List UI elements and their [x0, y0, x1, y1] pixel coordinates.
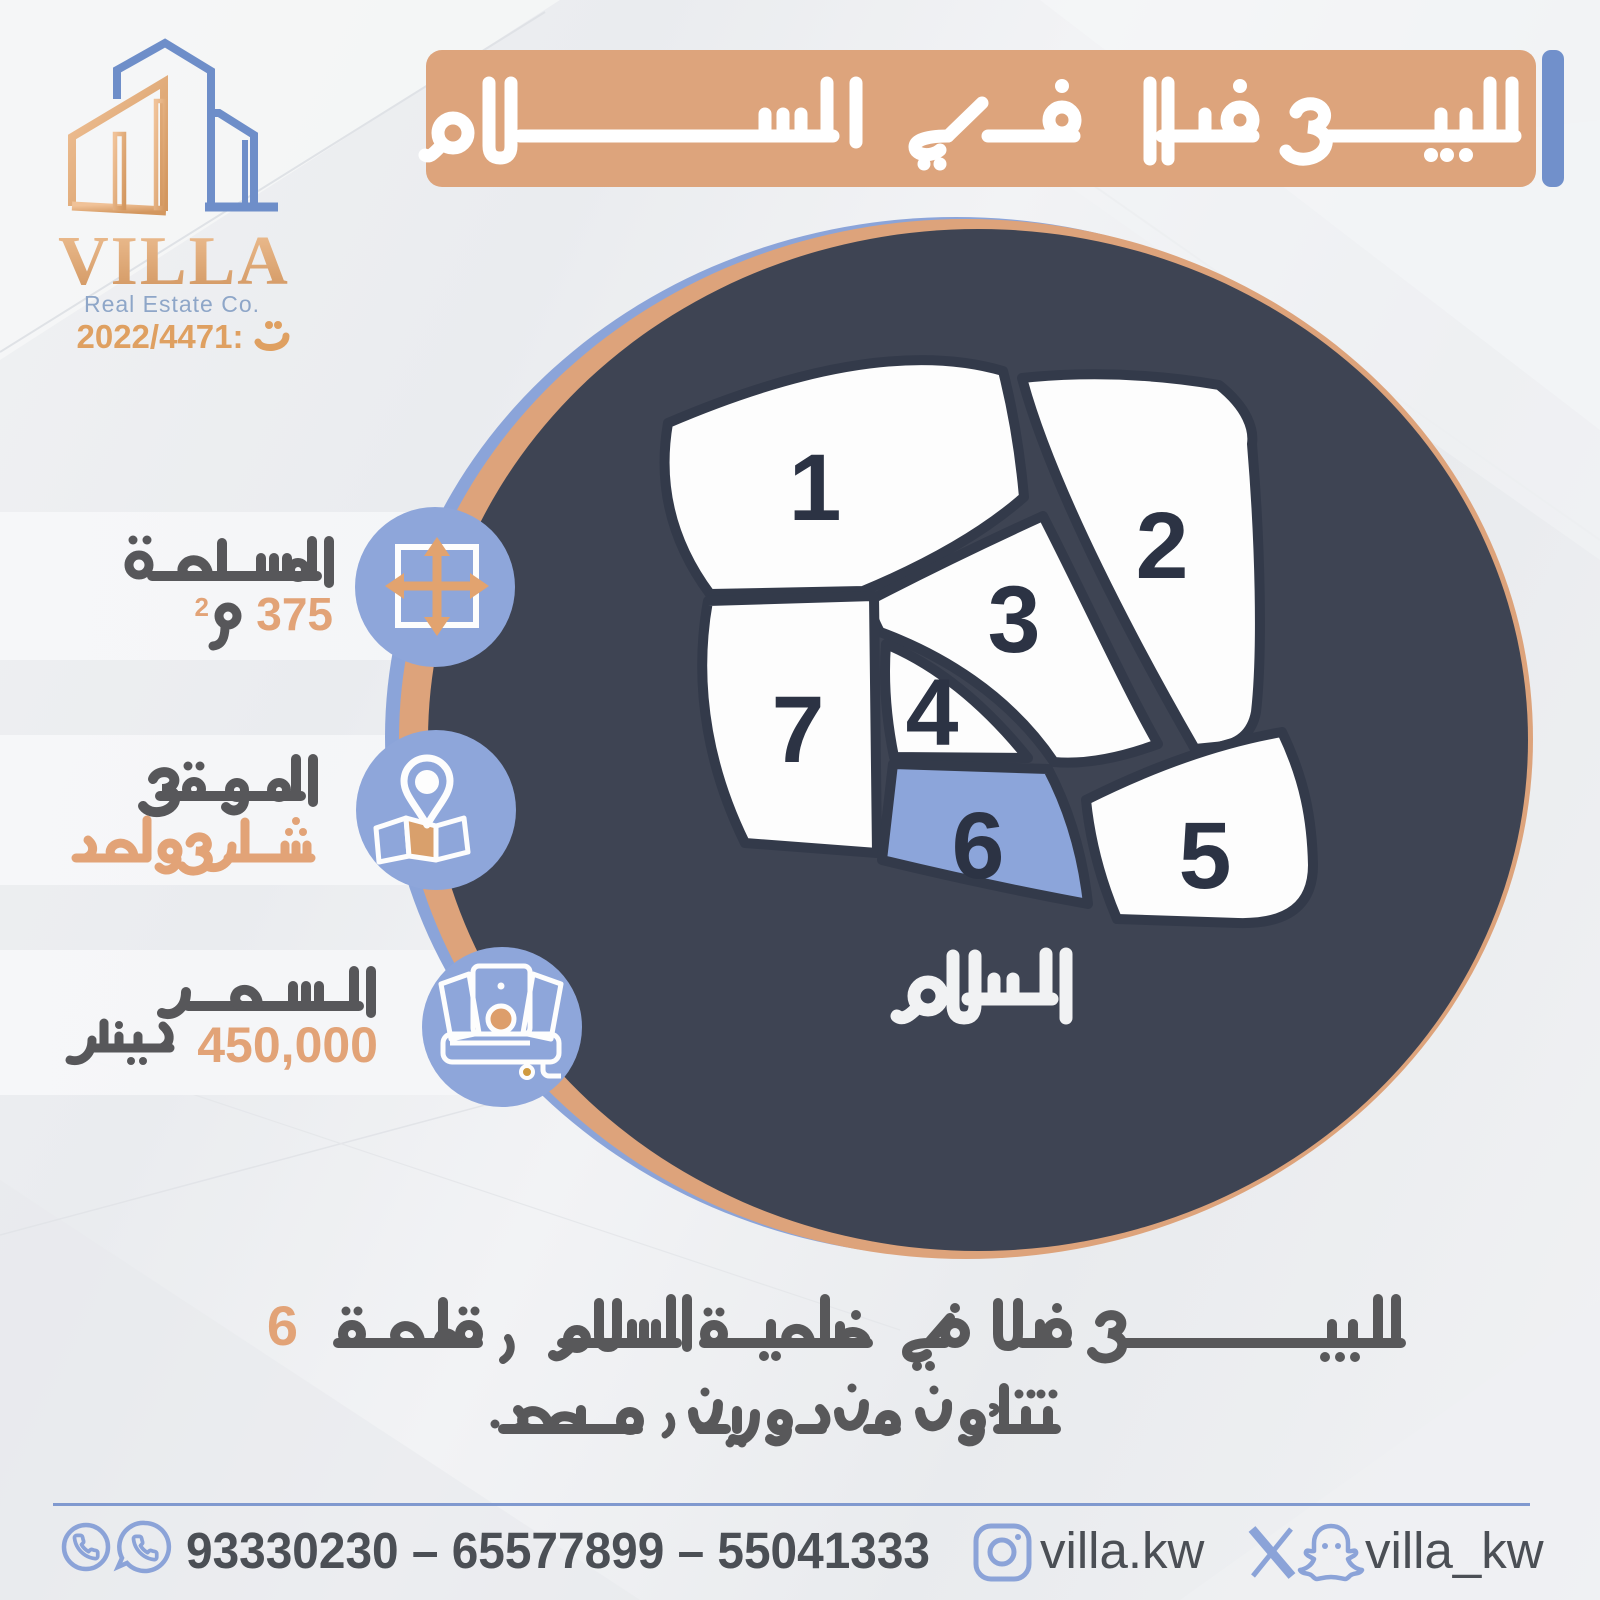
svg-text:2: 2	[195, 592, 209, 622]
svg-text:375: 375	[256, 588, 333, 640]
svg-text:VILLA: VILLA	[58, 223, 290, 300]
svg-text:450,000: 450,000	[197, 1017, 378, 1073]
svg-text:5: 5	[1179, 803, 1232, 909]
svg-text:3: 3	[988, 567, 1041, 673]
svg-text:6: 6	[952, 793, 1005, 899]
svg-text:villa_kw: villa_kw	[1365, 1522, 1544, 1579]
svg-text:4: 4	[906, 660, 959, 766]
svg-text:7: 7	[772, 677, 825, 783]
svg-text:Real Estate Co.: Real Estate Co.	[84, 291, 260, 317]
svg-text:villa.kw: villa.kw	[1040, 1522, 1205, 1579]
svg-text:6: 6	[267, 1294, 298, 1357]
svg-text:2022/4471:: 2022/4471:	[77, 318, 244, 355]
svg-text:2: 2	[1136, 493, 1189, 599]
svg-text:93330230 – 65577899 – 55041333: 93330230 – 65577899 – 55041333	[186, 1522, 930, 1579]
svg-text:1: 1	[789, 435, 842, 541]
